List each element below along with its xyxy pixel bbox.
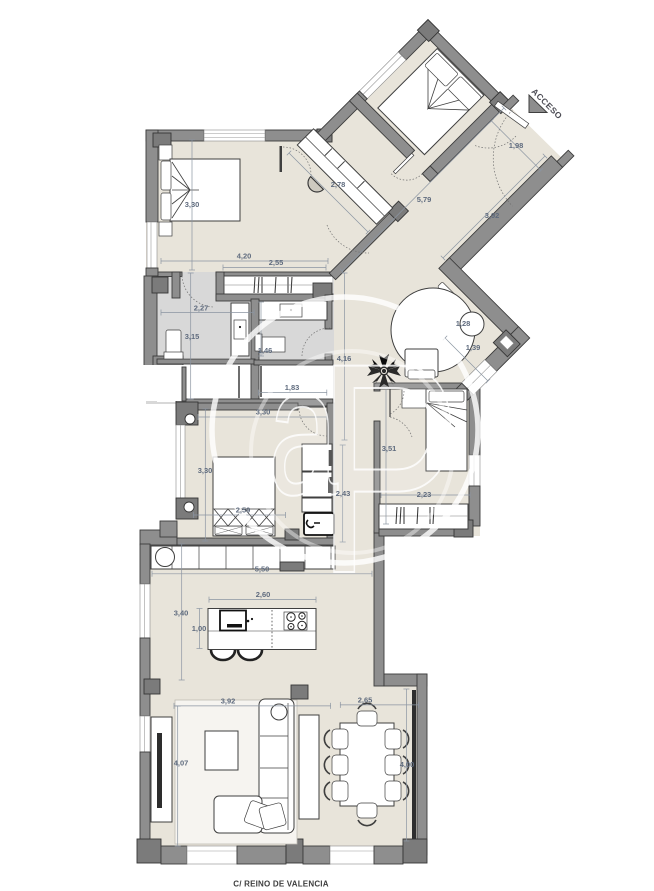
svg-text:2,78: 2,78 — [331, 180, 346, 189]
svg-text:3,51: 3,51 — [382, 444, 397, 453]
svg-text:P: P — [316, 300, 462, 636]
svg-text:3,30: 3,30 — [198, 466, 213, 475]
svg-text:4,00: 4,00 — [400, 760, 415, 769]
svg-text:1,46: 1,46 — [258, 346, 273, 355]
svg-text:4,16: 4,16 — [337, 354, 352, 363]
svg-text:3,15: 3,15 — [185, 332, 200, 341]
svg-text:1,83: 1,83 — [285, 383, 300, 392]
svg-text:C/ REINO DE VALENCIA: C/ REINO DE VALENCIA — [233, 880, 328, 889]
svg-text:1,28: 1,28 — [456, 319, 471, 328]
svg-text:3,92: 3,92 — [221, 697, 236, 706]
svg-text:1,39: 1,39 — [466, 343, 481, 352]
svg-text:2,65: 2,65 — [358, 696, 373, 705]
svg-text:4,20: 4,20 — [237, 252, 252, 261]
svg-text:3,30: 3,30 — [256, 408, 271, 417]
svg-text:2,23: 2,23 — [417, 490, 432, 499]
svg-text:5,50: 5,50 — [255, 565, 270, 574]
svg-text:2,60: 2,60 — [256, 590, 271, 599]
svg-text:1,00: 1,00 — [192, 624, 207, 633]
svg-text:3,40: 3,40 — [174, 609, 189, 618]
svg-text:2,43: 2,43 — [336, 489, 351, 498]
svg-text:2,59: 2,59 — [236, 506, 251, 515]
svg-text:4,07: 4,07 — [174, 759, 189, 768]
svg-text:2,27: 2,27 — [194, 304, 209, 313]
svg-text:1,98: 1,98 — [509, 141, 524, 150]
svg-text:3,30: 3,30 — [185, 200, 200, 209]
svg-text:3,92: 3,92 — [485, 211, 500, 220]
svg-text:5,79: 5,79 — [417, 195, 432, 204]
svg-text:2,55: 2,55 — [269, 258, 284, 267]
